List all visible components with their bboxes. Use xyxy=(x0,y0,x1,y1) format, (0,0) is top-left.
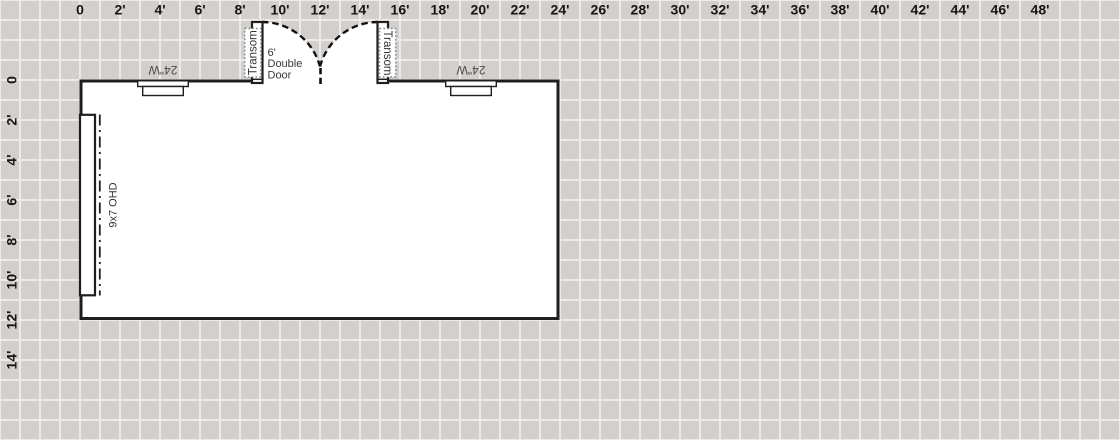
svg-text:Double: Double xyxy=(268,58,303,70)
svg-text:22': 22' xyxy=(511,2,530,18)
svg-text:42': 42' xyxy=(911,2,930,18)
svg-text:9x7 OHD: 9x7 OHD xyxy=(108,182,120,227)
svg-text:16': 16' xyxy=(391,2,410,18)
svg-text:14': 14' xyxy=(351,2,370,18)
svg-text:4': 4' xyxy=(154,2,165,18)
svg-text:Transom: Transom xyxy=(381,31,393,76)
svg-text:12': 12' xyxy=(311,2,330,18)
svg-text:26': 26' xyxy=(591,2,610,18)
svg-text:4': 4' xyxy=(4,154,20,165)
svg-text:6': 6' xyxy=(268,47,276,59)
svg-text:24"W: 24"W xyxy=(148,63,178,77)
svg-text:44': 44' xyxy=(951,2,970,18)
svg-text:8': 8' xyxy=(234,2,245,18)
svg-text:0: 0 xyxy=(4,76,20,84)
svg-text:32': 32' xyxy=(711,2,730,18)
svg-text:30': 30' xyxy=(671,2,690,18)
svg-text:40': 40' xyxy=(871,2,890,18)
svg-text:24"W: 24"W xyxy=(456,63,486,77)
svg-text:34': 34' xyxy=(751,2,770,18)
svg-text:12': 12' xyxy=(4,311,20,330)
svg-text:6': 6' xyxy=(194,2,205,18)
svg-text:28': 28' xyxy=(631,2,650,18)
svg-text:8': 8' xyxy=(4,234,20,245)
svg-text:0: 0 xyxy=(76,2,84,18)
svg-text:Door: Door xyxy=(268,70,292,82)
svg-text:2': 2' xyxy=(4,114,20,125)
svg-text:48': 48' xyxy=(1031,2,1050,18)
svg-text:Transom: Transom xyxy=(247,30,259,75)
svg-text:2': 2' xyxy=(114,2,125,18)
svg-text:18': 18' xyxy=(431,2,450,18)
svg-text:14': 14' xyxy=(4,351,20,370)
svg-text:10': 10' xyxy=(271,2,290,18)
svg-text:10': 10' xyxy=(4,271,20,290)
svg-text:24': 24' xyxy=(551,2,570,18)
svg-text:38': 38' xyxy=(831,2,850,18)
svg-text:36': 36' xyxy=(791,2,810,18)
svg-text:46': 46' xyxy=(991,2,1010,18)
svg-text:20': 20' xyxy=(471,2,490,18)
svg-text:6': 6' xyxy=(4,194,20,205)
